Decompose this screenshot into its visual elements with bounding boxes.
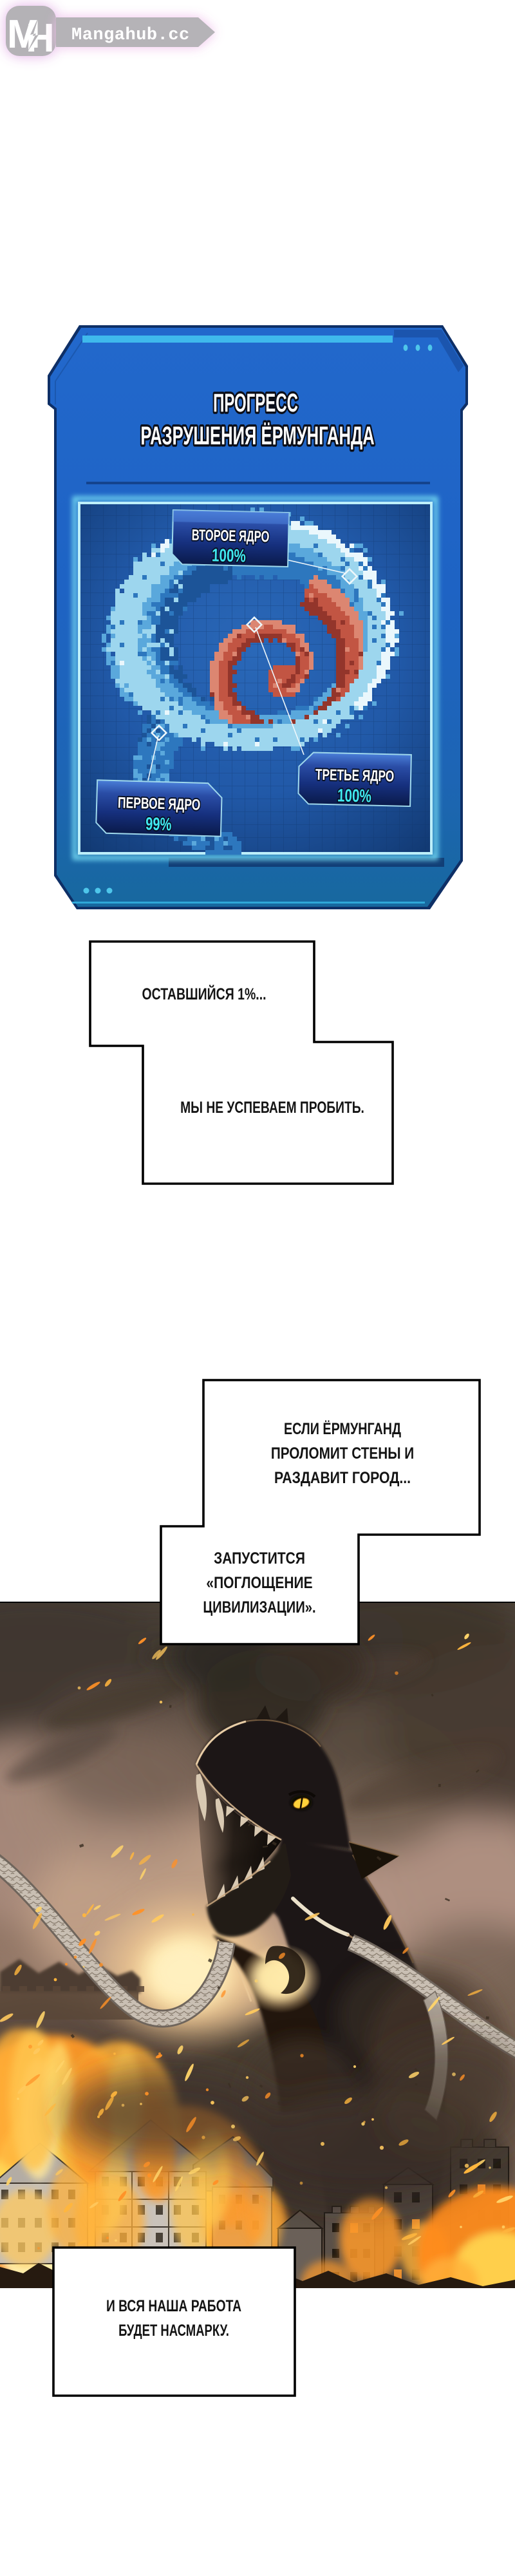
svg-text:МЫ НЕ УСПЕВАЕМ ПРОБИТЬ.: МЫ НЕ УСПЕВАЕМ ПРОБИТЬ. — [180, 1099, 364, 1117]
svg-text:Mangahub.cc: Mangahub.cc — [71, 26, 190, 45]
svg-text:И ВСЯ НАША РАБОТА: И ВСЯ НАША РАБОТА — [106, 2297, 241, 2315]
svg-text:100%: 100% — [337, 786, 372, 807]
svg-text:ЗАПУСТИТСЯ: ЗАПУСТИТСЯ — [214, 1549, 305, 1567]
svg-text:РАЗРУШЕНИЯ ЁРМУНГАНДА: РАЗРУШЕНИЯ ЁРМУНГАНДА — [140, 422, 374, 450]
svg-text:ПРОЛОМИТ СТЕНЫ И: ПРОЛОМИТ СТЕНЫ И — [271, 1444, 414, 1462]
svg-text:ПРОГРЕСС: ПРОГРЕСС — [213, 388, 298, 417]
svg-text:ТРЕТЬЕ ЯДРО: ТРЕТЬЕ ЯДРО — [315, 766, 395, 785]
svg-text:100%: 100% — [212, 545, 247, 566]
svg-text:H: H — [26, 16, 55, 61]
svg-text:ЕСЛИ ЁРМУНГАНД: ЕСЛИ ЁРМУНГАНД — [284, 1420, 401, 1438]
svg-text:ЦИВИЛИЗАЦИИ».: ЦИВИЛИЗАЦИИ». — [203, 1598, 315, 1616]
svg-text:ПЕРВОЕ ЯДРО: ПЕРВОЕ ЯДРО — [118, 795, 201, 814]
svg-text:99%: 99% — [145, 814, 172, 835]
svg-text:ВТОРОЕ ЯДРО: ВТОРОЕ ЯДРО — [191, 527, 269, 546]
svg-text:БУДЕТ НАСМАРКУ.: БУДЕТ НАСМАРКУ. — [118, 2321, 229, 2339]
svg-text:РАЗДАВИТ ГОРОД...: РАЗДАВИТ ГОРОД... — [274, 1468, 411, 1486]
svg-text:ОСТАВШИЙСЯ 1%...: ОСТАВШИЙСЯ 1%... — [142, 985, 266, 1003]
svg-text:«ПОГЛОЩЕНИЕ: «ПОГЛОЩЕНИЕ — [206, 1573, 312, 1591]
